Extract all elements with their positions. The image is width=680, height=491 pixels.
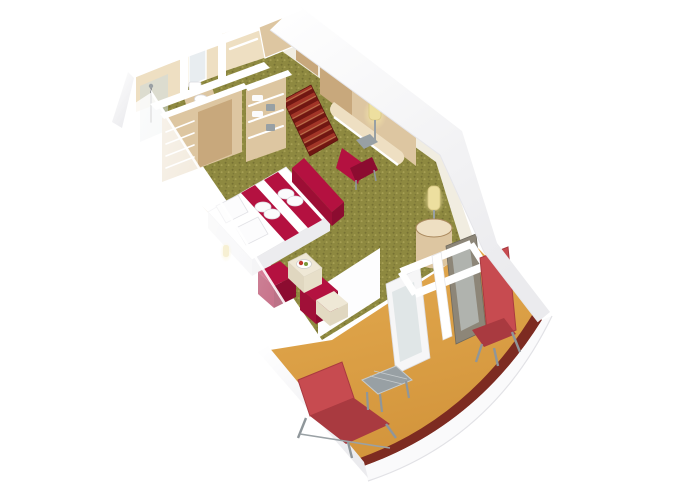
fruit <box>299 261 303 265</box>
pedestal-top <box>416 219 452 237</box>
cabin-3d-floorplan <box>0 0 680 491</box>
cabin-render-canvas <box>0 0 680 491</box>
safe-box <box>266 104 275 111</box>
shower-head <box>149 84 153 88</box>
table-leg <box>367 392 368 410</box>
pedestal-lamp-shade <box>428 186 440 210</box>
minibar-box <box>266 124 275 131</box>
folded-towel <box>252 111 263 117</box>
fruit <box>304 262 308 266</box>
folded-towel <box>252 95 263 101</box>
